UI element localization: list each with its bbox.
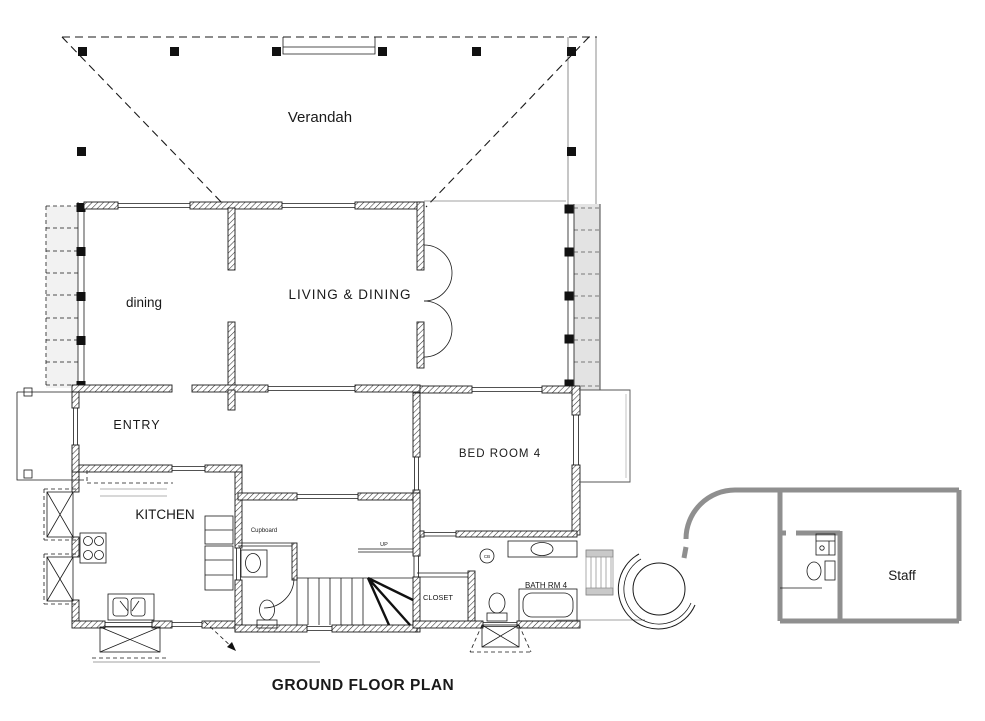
stove xyxy=(80,533,106,563)
powder-room-fixtures xyxy=(241,550,277,628)
plan-title: GROUND FLOOR PLAN xyxy=(272,677,454,694)
up-label: UP xyxy=(380,542,388,548)
floor-plan-drawing: Verandah xyxy=(0,0,985,721)
staircase xyxy=(238,543,413,625)
kitchen-porch xyxy=(92,627,168,658)
cb-label: CB xyxy=(484,554,490,559)
window-box xyxy=(44,554,76,604)
closet-label: CLOSET xyxy=(423,593,453,602)
bathrm4-label: BATH RM 4 xyxy=(525,581,568,590)
bath-porch xyxy=(470,625,531,652)
windows xyxy=(74,204,579,631)
circular-court-outer-arc xyxy=(618,554,695,629)
floor-plan-canvas: Verandah xyxy=(0,0,985,721)
staff-sink xyxy=(816,534,835,555)
living-double-door-arc xyxy=(424,245,452,301)
powder-basin-counter xyxy=(241,550,267,577)
verandah-steps xyxy=(283,37,375,54)
vanity-counter xyxy=(508,541,577,557)
verandah-label: Verandah xyxy=(288,109,352,126)
living-double-door-arc xyxy=(424,301,452,357)
living-dining-label: LIVING & DINING xyxy=(288,287,411,302)
window-box xyxy=(44,489,76,540)
kitchen-label: KITCHEN xyxy=(135,507,194,522)
verandah-columns xyxy=(77,47,576,156)
vanity-basin xyxy=(531,543,553,556)
kitchen-cabinets xyxy=(205,516,233,590)
powder-toilet xyxy=(260,600,275,620)
kitchen-sink xyxy=(108,594,154,620)
main-house-walls xyxy=(72,202,580,632)
staff-label: Staff xyxy=(888,568,916,583)
entry-label: ENTRY xyxy=(113,418,160,432)
powder-basin xyxy=(246,554,261,573)
dining-label: dining xyxy=(126,295,162,310)
bedroom-terrace xyxy=(579,390,630,482)
powder-door-arc xyxy=(264,578,294,608)
circular-court-inner-arc xyxy=(624,559,691,624)
right-louver-wall xyxy=(565,204,601,392)
left-louver-wall xyxy=(46,202,86,392)
closet-front xyxy=(417,573,468,577)
staff-bathroom-fixtures xyxy=(807,534,835,580)
curved-connector-wall xyxy=(618,490,735,629)
cupboard-label: Cupboard xyxy=(251,528,277,534)
exterior-steps xyxy=(586,550,613,595)
staff-quarters-walls xyxy=(735,490,959,621)
circular-court xyxy=(633,563,685,615)
staff-toilet xyxy=(807,562,821,580)
toilet xyxy=(489,593,505,613)
bedroom4-label: BED ROOM 4 xyxy=(459,448,541,460)
